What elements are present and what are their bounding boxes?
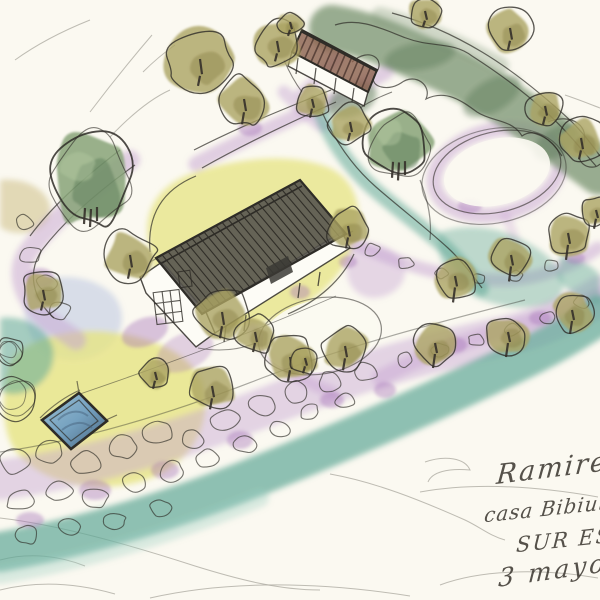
watercolor-sketch: Ramirez casa Bibiuta SUR ES 3 mayo [0, 0, 600, 600]
